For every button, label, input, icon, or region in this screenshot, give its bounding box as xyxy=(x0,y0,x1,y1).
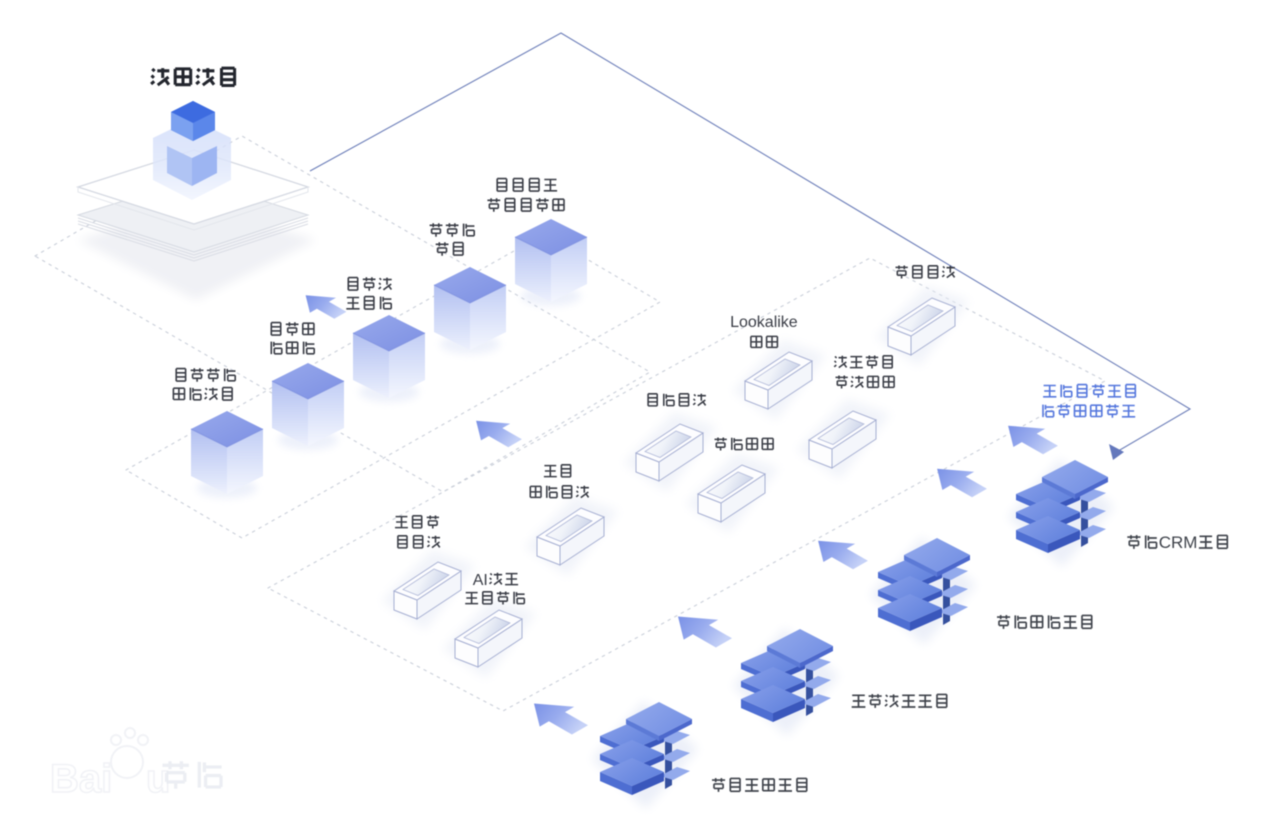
svg-text:CRM: CRM xyxy=(1159,533,1198,552)
svg-text:Bai: Bai xyxy=(50,757,112,801)
svg-text:AI: AI xyxy=(473,572,488,589)
svg-text:Lookalike: Lookalike xyxy=(730,314,798,331)
